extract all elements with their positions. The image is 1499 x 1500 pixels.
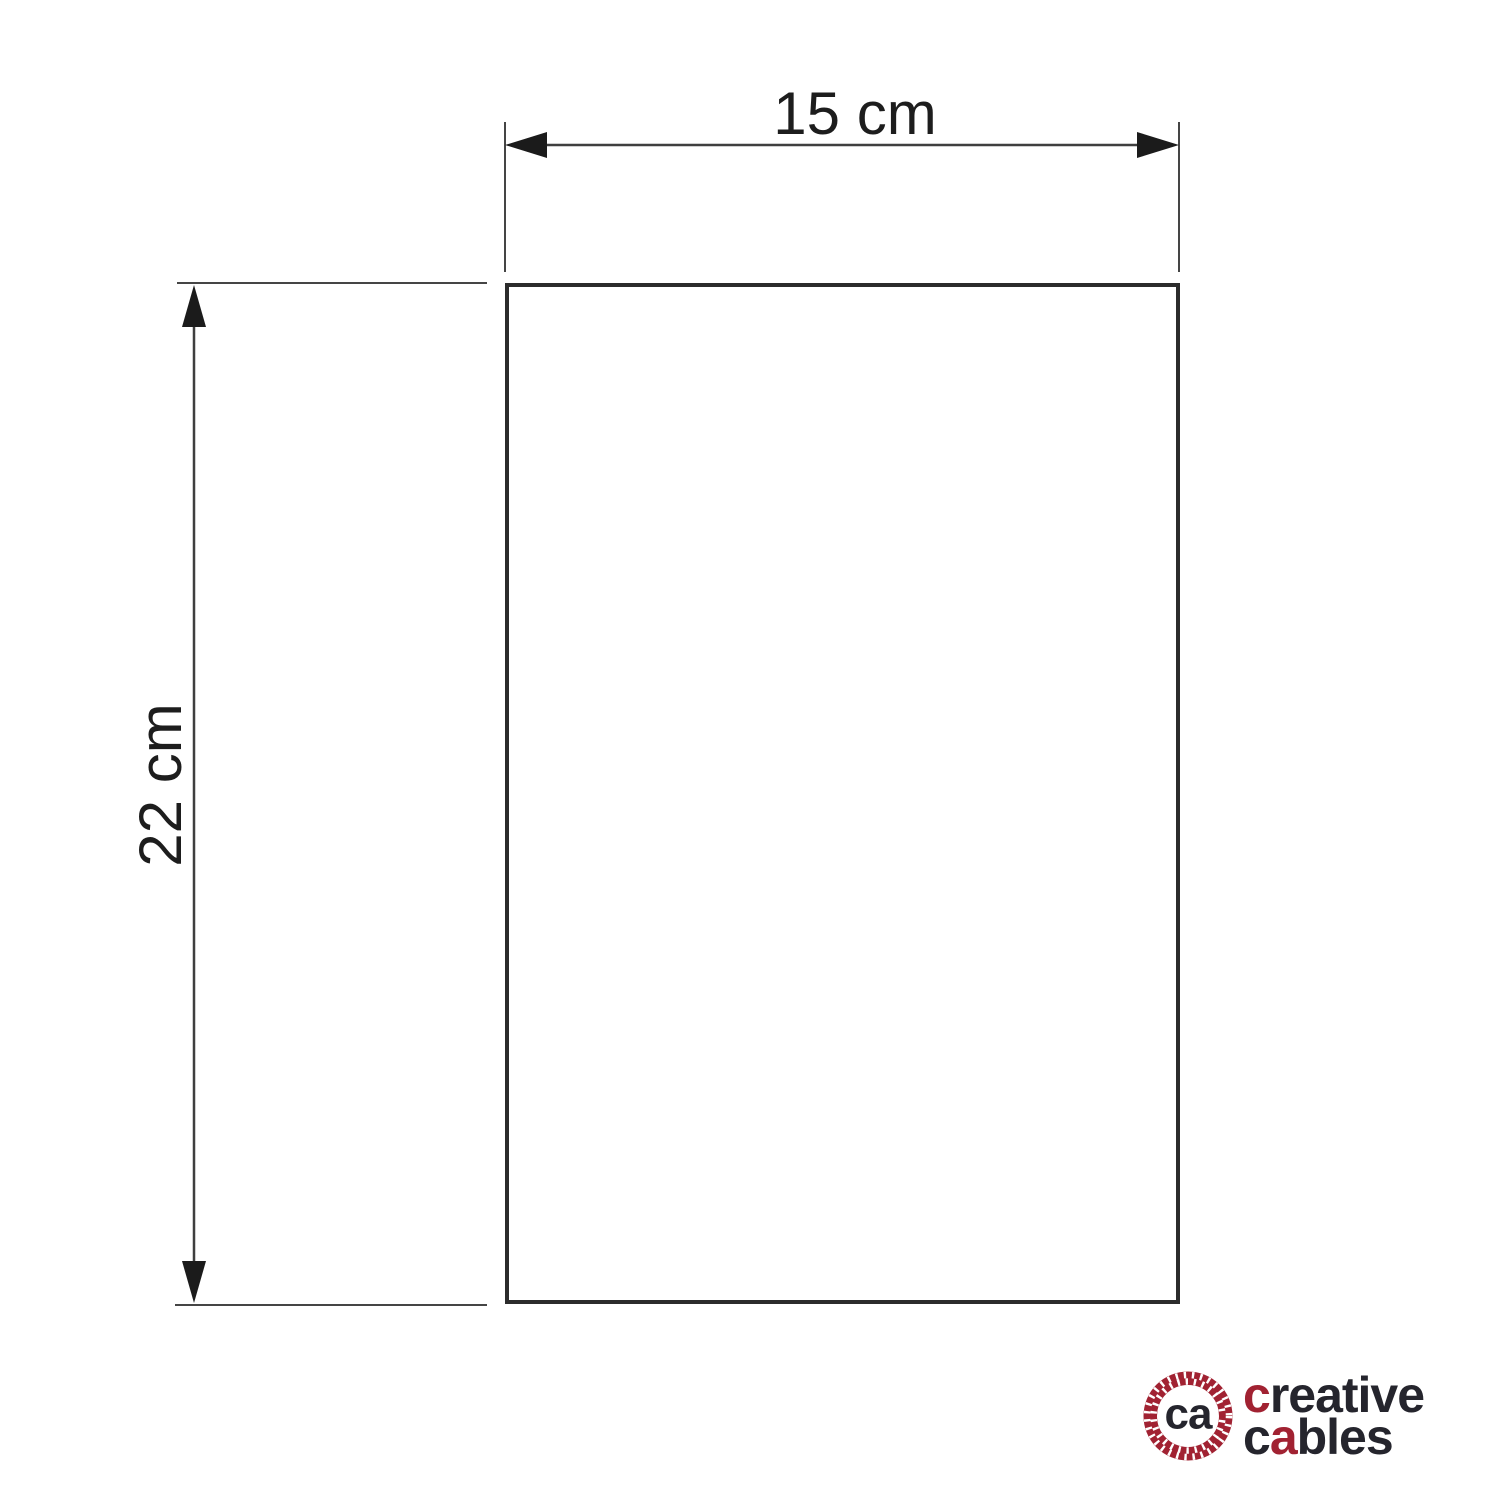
height-dimension-label: 22 cm bbox=[131, 675, 191, 895]
product-dimension-diagram: 15 cm 22 cm ca creative cables bbox=[0, 0, 1499, 1500]
arrowhead-right-icon bbox=[1137, 132, 1179, 158]
dimension-drawing bbox=[0, 0, 1499, 1500]
logo-cables-initial: c bbox=[1243, 1409, 1270, 1465]
logo-monogram: ca bbox=[1140, 1390, 1236, 1440]
brand-logo: ca creative cables bbox=[1140, 1368, 1424, 1464]
rope-ring-icon: ca bbox=[1140, 1368, 1236, 1464]
logo-cables-accent: a bbox=[1270, 1409, 1297, 1465]
product-outline-rect bbox=[507, 285, 1178, 1302]
width-dimension-label: 15 cm bbox=[745, 84, 965, 144]
arrowhead-left-icon bbox=[505, 132, 547, 158]
logo-cables-rest: bles bbox=[1297, 1409, 1393, 1465]
arrowhead-up-icon bbox=[182, 285, 206, 327]
arrowhead-down-icon bbox=[182, 1261, 206, 1303]
logo-wordmark: creative cables bbox=[1243, 1374, 1424, 1458]
height-dimension bbox=[175, 283, 487, 1305]
